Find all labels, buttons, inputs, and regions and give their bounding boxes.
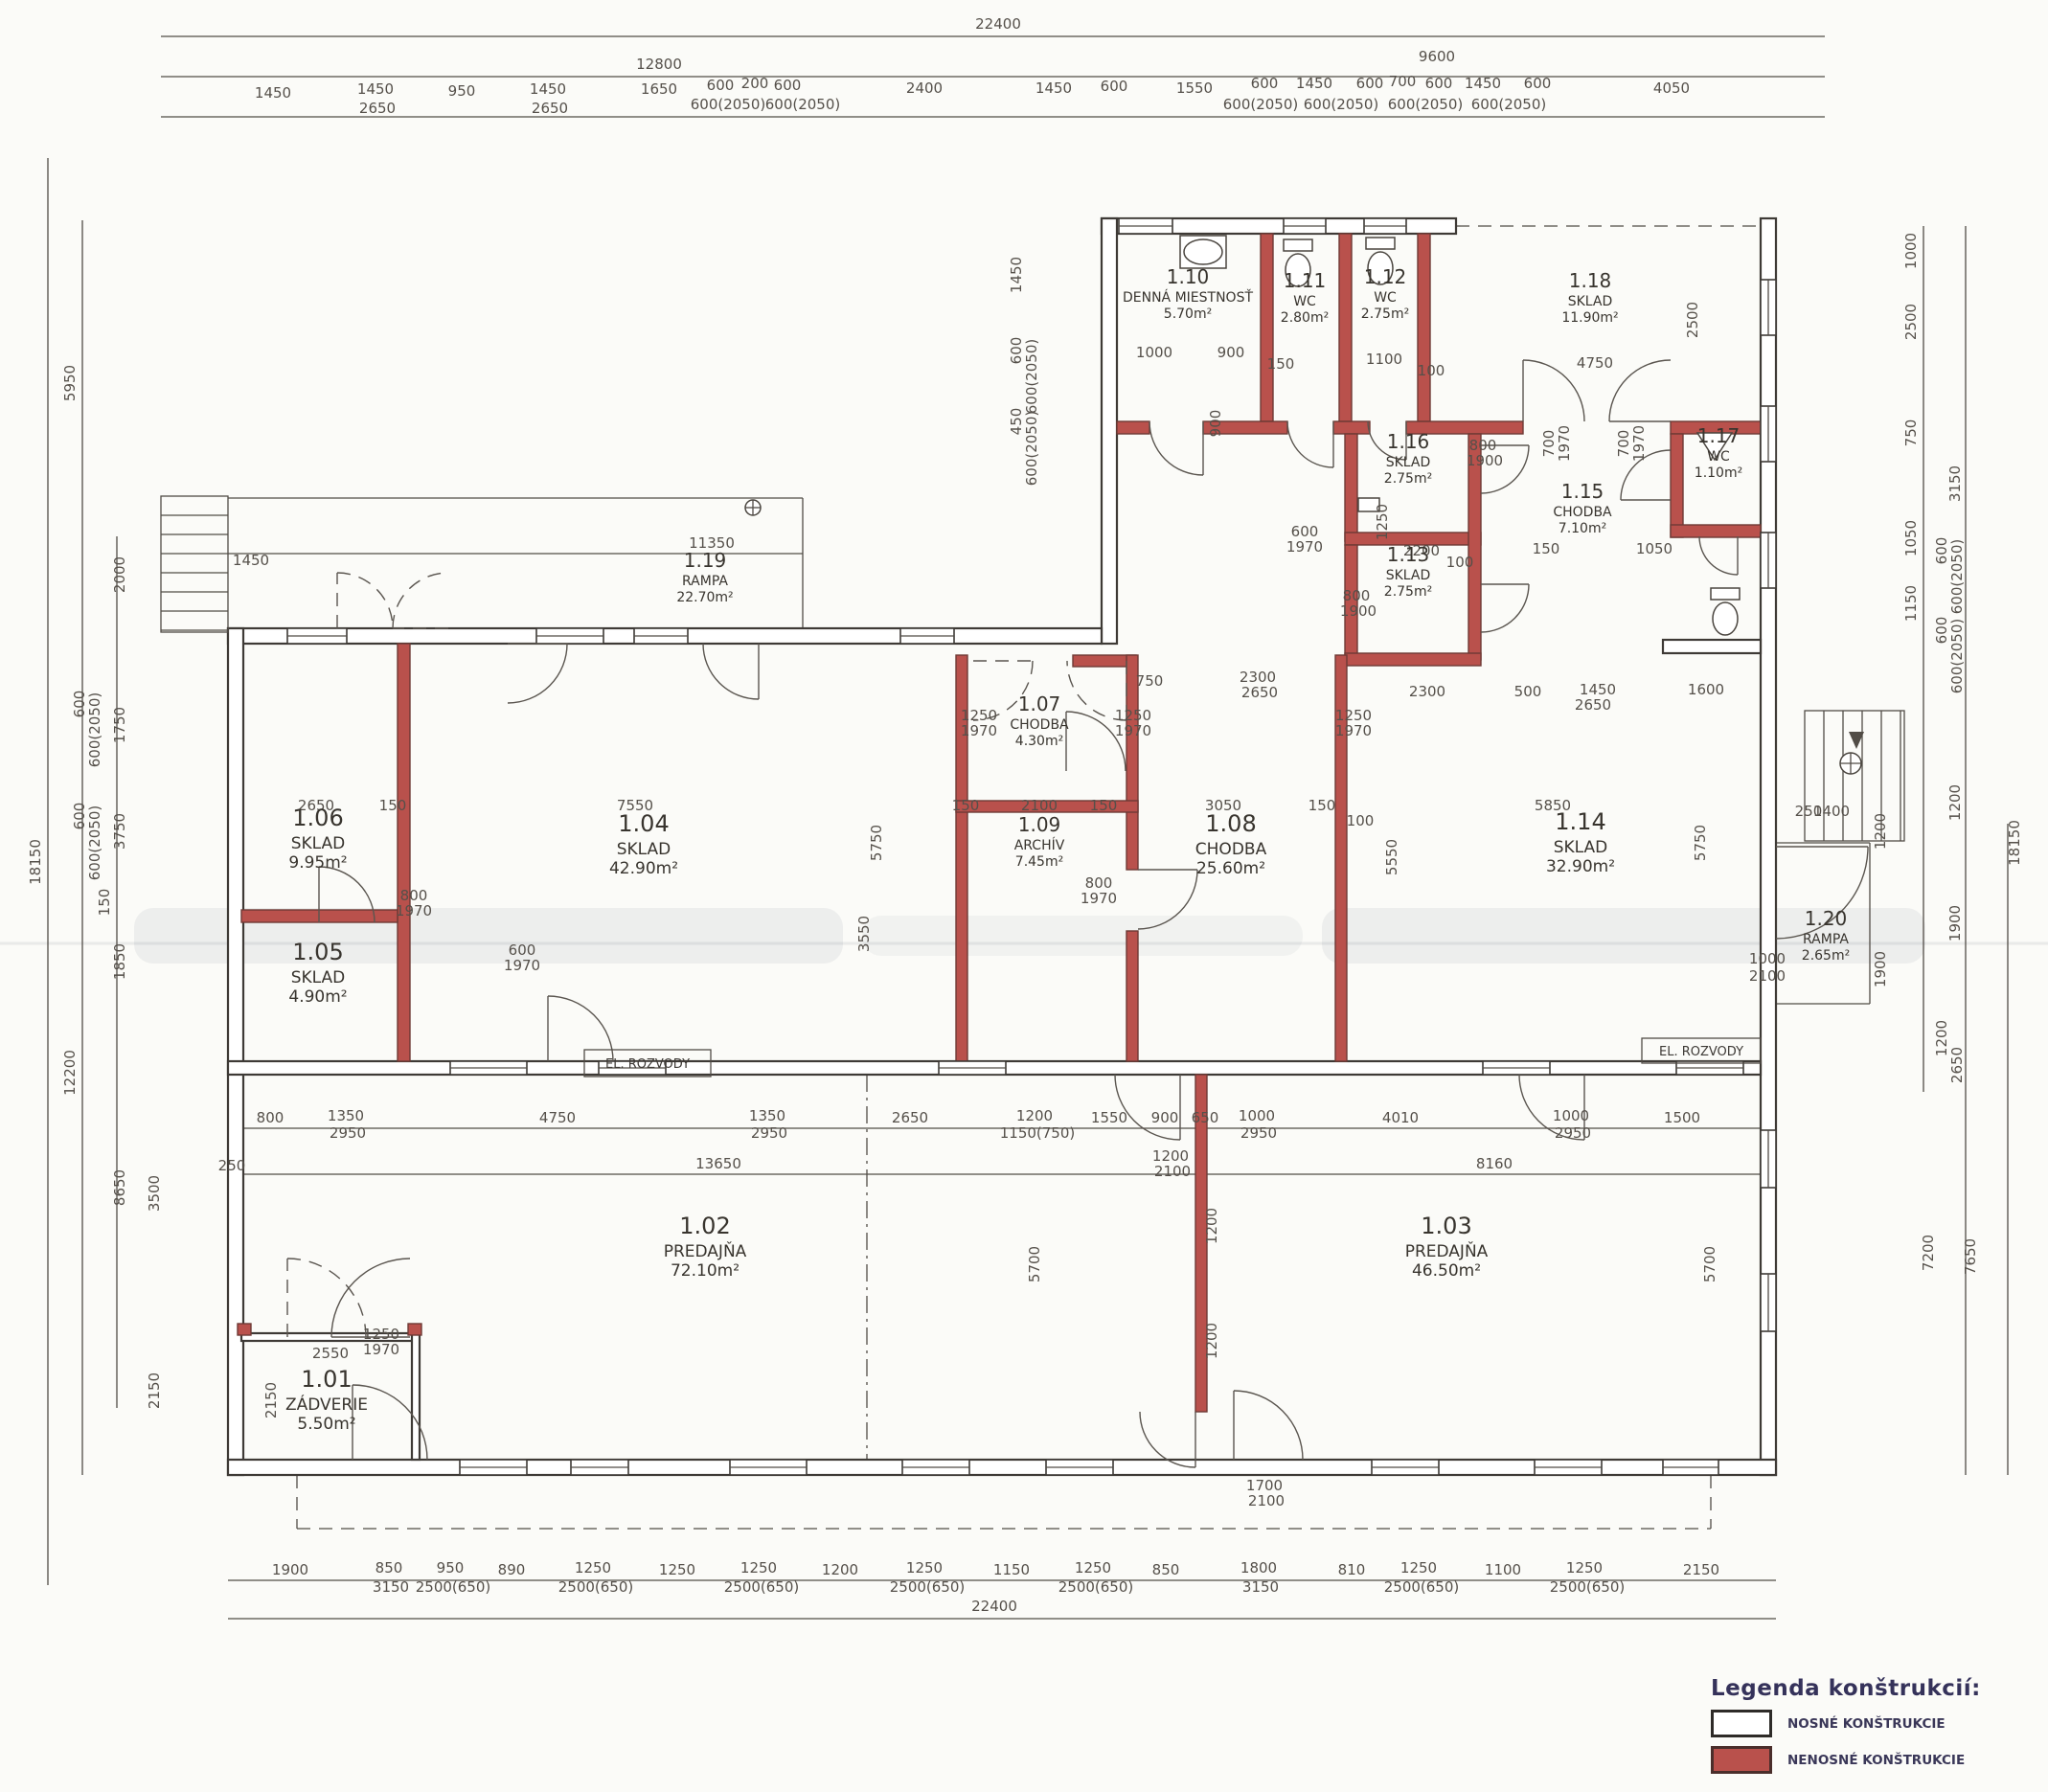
- dimension-label: 600(2050): [1304, 96, 1379, 113]
- dimension-label: 1970: [1630, 425, 1648, 462]
- room-area: 5.70m²: [1164, 306, 1212, 322]
- room-area: 25.60m²: [1196, 859, 1265, 878]
- load-bearing-wall: [412, 1333, 420, 1460]
- annotation-label: EL. ROZVODY: [1659, 1045, 1743, 1059]
- dimension-label: 1750: [111, 707, 128, 743]
- room-number-1.17: 1.17: [1697, 424, 1741, 447]
- room-area: 32.90m²: [1546, 857, 1615, 876]
- dimension-label: 1200: [1946, 784, 1964, 821]
- dimension-label: 1970: [363, 1341, 399, 1358]
- room-number-1.16: 1.16: [1387, 430, 1430, 453]
- dimension-label: 1200: [1016, 1107, 1053, 1124]
- room-number-1.19: 1.19: [684, 549, 727, 572]
- dimension-label: 600: [1524, 75, 1552, 92]
- door-swing-arc: [548, 996, 613, 1061]
- dimension-label: 1650: [641, 80, 677, 98]
- dimension-label: 1150: [993, 1561, 1030, 1578]
- dimension-label: 1900: [1946, 905, 1964, 941]
- dimension-label: 1900: [272, 1561, 308, 1578]
- load-bearing-wall: [1663, 640, 1761, 653]
- room-number-1.01: 1.01: [301, 1366, 352, 1393]
- non-load-bearing-wall: [1671, 434, 1683, 537]
- door-swing-arc: [393, 573, 448, 628]
- dimension-label: 600(2050): [1223, 96, 1299, 113]
- door-swing-arc: [1609, 360, 1671, 421]
- dimension-label: 4750: [539, 1109, 576, 1126]
- dimension-label: 22400: [975, 15, 1021, 33]
- dimension-label: 1200: [1203, 1208, 1220, 1244]
- dimension-label: 600: [774, 77, 802, 94]
- door-swing-arc: [1699, 536, 1738, 575]
- dimension-label: 200: [741, 75, 769, 92]
- dimension-label: 2500(650): [1550, 1578, 1626, 1596]
- dimension-label: 600(2050): [86, 692, 103, 768]
- dimension-label: 2100: [1248, 1492, 1285, 1509]
- dimension-label: 600(2050): [1023, 339, 1040, 415]
- dimension-label: 1200: [822, 1561, 858, 1578]
- dimension-label: 3550: [855, 916, 873, 952]
- dimension-label: 1900: [1340, 602, 1377, 620]
- room-number-1.07: 1.07: [1018, 692, 1061, 715]
- dimension-label: 1250: [740, 1559, 777, 1577]
- dimension-label: 1200: [1203, 1323, 1220, 1359]
- dimension-label: 1150(750): [1000, 1124, 1076, 1142]
- legend-item-load-bearing: NOSNÉ KONŠTRUKCIE: [1711, 1710, 2040, 1737]
- dimension-label: 3150: [1946, 465, 1964, 502]
- room-area: 2.75m²: [1384, 584, 1432, 600]
- dimension-label: 950: [448, 82, 476, 100]
- dimension-label: 600(2050): [1023, 411, 1040, 487]
- dimension-label: 1970: [1335, 722, 1372, 739]
- room-number-1.08: 1.08: [1205, 810, 1256, 837]
- dimension-label: 750: [1902, 420, 1920, 447]
- room-name: SKLAD: [1386, 568, 1431, 583]
- room-number-1.10: 1.10: [1167, 265, 1210, 288]
- room-number-1.06: 1.06: [292, 805, 343, 831]
- dimension-label: 1970: [396, 902, 432, 919]
- dimension-label: 600: [1425, 75, 1453, 92]
- room-area: 4.90m²: [288, 987, 347, 1007]
- dimension-label: 1000: [1136, 344, 1172, 361]
- dimension-label: 1200: [1872, 813, 1889, 850]
- room-number-1.04: 1.04: [618, 810, 669, 837]
- dimension-label: 2650: [892, 1109, 928, 1126]
- dimension-label: 2500(650): [1384, 1578, 1460, 1596]
- dimension-label: 1050: [1636, 540, 1673, 557]
- load-bearing-wall: [228, 628, 243, 1475]
- dimension-label: 1000: [1902, 233, 1920, 269]
- legend-title: Legenda konštrukcií:: [1711, 1676, 2040, 1701]
- dimension-label: 3150: [1242, 1578, 1279, 1596]
- dimension-label: 3150: [373, 1578, 409, 1596]
- dimension-label: 4750: [1577, 354, 1613, 372]
- dimension-label: 1250: [659, 1561, 695, 1578]
- dimension-label: 1000: [1239, 1107, 1275, 1124]
- room-area: 11.90m²: [1561, 310, 1618, 326]
- dimension-label: 4050: [1653, 79, 1690, 97]
- dimension-label: 1050: [1902, 520, 1920, 556]
- dimension-label: 850: [375, 1559, 403, 1577]
- dimension-label: 1970: [1081, 890, 1117, 907]
- dimension-label: 810: [1338, 1561, 1366, 1578]
- sanitary-fixture: [1284, 239, 1312, 251]
- room-name: SKLAD: [291, 834, 346, 853]
- room-name: CHODBA: [1010, 717, 1069, 733]
- dimension-label: 900: [1217, 344, 1245, 361]
- room-number-1.14: 1.14: [1555, 808, 1605, 835]
- dimension-label: 2100: [1021, 797, 1058, 814]
- dimension-label: 2650: [1948, 1047, 1966, 1083]
- door-swing-arc: [1287, 421, 1333, 467]
- dimension-label: 890: [498, 1561, 526, 1578]
- dimension-label: 2500(650): [1058, 1578, 1134, 1596]
- dimension-label: 2550: [312, 1345, 349, 1362]
- dimension-label: 2500(650): [890, 1578, 966, 1596]
- non-load-bearing-swatch: [1711, 1746, 1772, 1774]
- room-number-1.09: 1.09: [1018, 813, 1061, 836]
- dimension-label: 1600: [1688, 681, 1724, 698]
- room-area: 2.75m²: [1361, 306, 1409, 322]
- dimension-label: 2300: [1409, 683, 1445, 700]
- dimension-label: 5550: [1383, 839, 1400, 875]
- room-name: SKLAD: [1568, 294, 1613, 309]
- sanitary-fixture: [1711, 588, 1740, 600]
- room-area: 9.95m²: [288, 853, 347, 873]
- non-load-bearing-wall: [1333, 421, 1370, 434]
- non-load-bearing-wall: [1117, 421, 1149, 434]
- dimension-label: 850: [1152, 1561, 1180, 1578]
- room-area: 2.80m²: [1281, 310, 1329, 326]
- room-area: 46.50m²: [1412, 1261, 1481, 1281]
- dimension-label: 8160: [1476, 1155, 1513, 1172]
- dimension-label: 700: [1389, 73, 1417, 90]
- dimension-label: 1450: [233, 552, 269, 569]
- dimension-label: 2650: [1241, 684, 1278, 701]
- dimension-label: 1250: [575, 1559, 611, 1577]
- dimension-label: 1250: [1374, 504, 1391, 540]
- room-name: SKLAD: [291, 968, 346, 987]
- room-name: RAMPA: [1803, 932, 1849, 947]
- dimension-label: 1970: [1286, 538, 1323, 556]
- room-area: 72.10m²: [671, 1261, 740, 1281]
- dimension-label: 1350: [328, 1107, 364, 1124]
- dimension-label: 12200: [61, 1050, 79, 1096]
- dimension-label: 150: [1533, 540, 1560, 557]
- dimension-label: 600(2050): [1388, 96, 1464, 113]
- room-number-1.15: 1.15: [1561, 480, 1604, 503]
- dimension-label: 2650: [1575, 696, 1611, 714]
- dimension-label: 1450: [530, 80, 566, 98]
- dimension-label: 1500: [1664, 1109, 1700, 1126]
- dimension-label: 2950: [751, 1124, 787, 1142]
- dimension-label: 150: [952, 797, 980, 814]
- dimension-label: 900: [1207, 410, 1224, 438]
- room-number-1.20: 1.20: [1805, 907, 1848, 930]
- dimension-label: 600(2050): [765, 96, 841, 113]
- room-number-1.02: 1.02: [679, 1213, 730, 1239]
- dimension-label: 950: [437, 1559, 465, 1577]
- dimension-label: 1150: [1902, 585, 1920, 622]
- dimension-label: 1250: [1566, 1559, 1603, 1577]
- dimension-label: 8650: [111, 1169, 128, 1206]
- dimension-label: 1450: [1008, 257, 1025, 293]
- toilet-bowl: [1713, 602, 1738, 635]
- dimension-label: 2150: [146, 1372, 163, 1409]
- room-name: ZÁDVERIE: [285, 1394, 368, 1415]
- dimension-label: 2150: [262, 1382, 280, 1418]
- dimension-label: 1250: [1075, 1559, 1111, 1577]
- dimension-label: 5750: [868, 825, 885, 861]
- room-name: CHODBA: [1195, 840, 1267, 859]
- dimension-label: 1970: [1556, 425, 1573, 462]
- non-load-bearing-wall: [238, 1324, 251, 1335]
- door-swing-arc: [1481, 584, 1529, 632]
- dimension-label: 2950: [1555, 1124, 1591, 1142]
- dimension-label: 600: [1356, 75, 1384, 92]
- dimension-label: 1000: [1749, 950, 1786, 967]
- dimension-label: 2950: [330, 1124, 366, 1142]
- room-name: SKLAD: [617, 840, 671, 859]
- dimension-label: 1100: [1485, 1561, 1521, 1578]
- dimension-label: 1450: [255, 84, 291, 102]
- room-name: ARCHÍV: [1014, 837, 1065, 853]
- room-number-1.11: 1.11: [1284, 269, 1327, 292]
- room-area: 2.75m²: [1384, 471, 1432, 487]
- dimension-label: 5700: [1701, 1246, 1718, 1282]
- dimension-label: 2100: [1749, 967, 1786, 985]
- dimension-label: 12800: [636, 56, 682, 73]
- room-name: WC: [1707, 449, 1730, 465]
- dimension-label: 600(2050): [1948, 539, 1966, 615]
- dimension-label: 150: [1090, 797, 1118, 814]
- dimension-label: 2500(650): [724, 1578, 800, 1596]
- room-number-1.03: 1.03: [1421, 1213, 1471, 1239]
- dimension-label: 750: [1136, 672, 1164, 690]
- annotation-label: EL. ROZVODY: [605, 1057, 690, 1072]
- dimension-label: 150: [1267, 355, 1295, 373]
- sanitary-fixture: [1366, 238, 1395, 249]
- door-swing-arc: [508, 644, 567, 703]
- legend-item-non-load-bearing: NENOSNÉ KONŠTRUKCIE: [1711, 1746, 2040, 1774]
- dimension-label: 100: [1446, 554, 1474, 571]
- dimension-label: 100: [1347, 812, 1375, 829]
- room-number-1.12: 1.12: [1364, 265, 1407, 288]
- dimension-label: 650: [1192, 1109, 1219, 1126]
- non-load-bearing-wall: [1261, 234, 1273, 421]
- dimension-label: 1000: [1553, 1107, 1589, 1124]
- dimension-label: 600(2050): [1471, 96, 1547, 113]
- door-swing-arc: [1149, 421, 1203, 475]
- dimension-label: 2650: [359, 100, 396, 117]
- dimension-label: 1100: [1366, 351, 1402, 368]
- dimension-label: 3500: [146, 1175, 163, 1212]
- load-bearing-wall: [1102, 218, 1117, 644]
- room-area: 2.65m²: [1802, 948, 1850, 964]
- door-swing-arc: [1115, 1075, 1180, 1140]
- dimension-label: 9600: [1419, 48, 1455, 65]
- non-load-bearing-wall: [408, 1324, 421, 1335]
- non-load-bearing-wall: [1671, 525, 1761, 537]
- dimension-label: 1450: [357, 80, 394, 98]
- door-swing-arc: [1234, 1391, 1303, 1460]
- dimension-label: 2000: [111, 556, 128, 593]
- dimension-label: 1350: [749, 1107, 785, 1124]
- room-area: 4.30m²: [1015, 734, 1063, 749]
- room-name: PREDAJŇA: [664, 1240, 747, 1261]
- dimension-label: 2150: [1683, 1561, 1719, 1578]
- legend-item-label: NOSNÉ KONŠTRUKCIE: [1787, 1716, 1946, 1732]
- dimension-label: 500: [1514, 683, 1542, 700]
- dimension-label: 2500(650): [558, 1578, 634, 1596]
- room-area: 22.70m²: [676, 590, 733, 605]
- dimension-label: 2950: [1240, 1124, 1277, 1142]
- non-load-bearing-wall: [1418, 234, 1430, 421]
- dimension-label: 600(2050): [691, 96, 766, 113]
- dimension-label: 600(2050): [86, 805, 103, 881]
- scan-artifact: [862, 916, 1303, 956]
- room-number-1.05: 1.05: [292, 939, 343, 965]
- dimension-label: 1250: [906, 1559, 943, 1577]
- dimension-label: 1900: [1872, 951, 1889, 987]
- non-load-bearing-wall: [398, 644, 410, 1061]
- dimension-label: 5750: [1692, 825, 1709, 861]
- dimension-label: 1250: [1400, 1559, 1437, 1577]
- door-swing-arc: [337, 573, 393, 628]
- dimension-label: 18150: [2006, 820, 2023, 866]
- non-load-bearing-wall: [1339, 234, 1352, 421]
- room-name: SKLAD: [1386, 455, 1431, 470]
- dimension-label: 22400: [971, 1598, 1017, 1615]
- floor-plan-page: EL. ROZVODYEL. ROZVODY224001280096001450…: [0, 0, 2048, 1792]
- room-name: PREDAJŇA: [1405, 1240, 1489, 1261]
- stairs-outline: [161, 496, 228, 632]
- dimension-label: 1900: [1467, 452, 1503, 469]
- floor-plan-drawing: EL. ROZVODYEL. ROZVODY224001280096001450…: [0, 0, 2048, 1792]
- toilet-bowl: [1184, 239, 1222, 264]
- non-load-bearing-wall: [1345, 434, 1357, 541]
- dimension-label: 150: [1308, 797, 1336, 814]
- dimension-label: 2100: [1154, 1163, 1191, 1180]
- dimension-label: 150: [379, 797, 407, 814]
- dimension-label: 2500: [1902, 304, 1920, 340]
- door-swing-arc: [287, 1259, 366, 1337]
- dimension-label: 13650: [695, 1155, 741, 1172]
- dimension-label: 2400: [906, 79, 943, 97]
- dimension-label: 5700: [1026, 1246, 1043, 1282]
- dimension-label: 1970: [504, 957, 540, 974]
- room-name: RAMPA: [682, 574, 728, 589]
- dimension-label: 250: [218, 1157, 246, 1174]
- non-load-bearing-wall: [1126, 931, 1138, 1061]
- dimension-label: 800: [257, 1109, 284, 1126]
- dimension-label: 2500: [1684, 302, 1701, 338]
- room-name: CHODBA: [1553, 505, 1612, 520]
- dimension-label: 3750: [111, 813, 128, 850]
- dimension-label: 600: [1251, 75, 1279, 92]
- room-area: 42.90m²: [609, 859, 678, 878]
- room-name: WC: [1374, 290, 1397, 306]
- dimension-label: 150: [96, 889, 113, 917]
- dimension-label: 1970: [961, 722, 997, 739]
- dimension-label: 600(2050): [1948, 619, 1966, 694]
- dimension-label: 1550: [1176, 79, 1213, 97]
- non-load-bearing-wall: [1345, 653, 1481, 666]
- dimension-label: 2500(650): [416, 1578, 491, 1596]
- dimension-label: 7650: [1962, 1238, 1979, 1275]
- room-name: DENNÁ MIESTNOSŤ: [1123, 289, 1253, 306]
- dimension-label: 100: [1418, 362, 1445, 379]
- dimension-label: 1850: [111, 943, 128, 980]
- dimension-label: 600: [707, 77, 735, 94]
- room-area: 7.45m²: [1015, 854, 1063, 870]
- dimension-label: 900: [1151, 1109, 1179, 1126]
- dimension-label: 5950: [61, 365, 79, 401]
- dimension-label: 7200: [1920, 1235, 1937, 1271]
- dimension-label: 2650: [532, 100, 568, 117]
- dimension-label: 1450: [1465, 75, 1501, 92]
- room-name: WC: [1293, 294, 1316, 309]
- door-swing-arc: [1523, 360, 1584, 421]
- stairs-outline: [1805, 711, 1904, 841]
- room-number-1.18: 1.18: [1569, 269, 1612, 292]
- room-area: 5.50m²: [297, 1415, 355, 1434]
- room-name: SKLAD: [1554, 838, 1608, 857]
- construction-legend: Legenda konštrukcií: NOSNÉ KONŠTRUKCIE N…: [1711, 1676, 2040, 1774]
- dimension-label: 1550: [1091, 1109, 1127, 1126]
- legend-item-label: NENOSNÉ KONŠTRUKCIE: [1787, 1753, 1965, 1768]
- dimension-label: 1450: [1035, 79, 1072, 97]
- dimension-label: 250: [1795, 803, 1823, 820]
- door-swing-arc: [1138, 870, 1197, 929]
- room-area: 7.10m²: [1559, 521, 1606, 536]
- room-area: 1.10m²: [1695, 465, 1742, 481]
- room-number-1.13: 1.13: [1387, 543, 1430, 566]
- dimension-label: 1800: [1240, 1559, 1277, 1577]
- dimension-label: 1450: [1296, 75, 1332, 92]
- dimension-label: 1970: [1115, 722, 1151, 739]
- door-swing-arc: [703, 644, 759, 699]
- dimension-label: 4010: [1382, 1109, 1419, 1126]
- dimension-label: 600: [1101, 78, 1128, 95]
- dimension-label: 18150: [27, 839, 44, 885]
- load-bearing-swatch: [1711, 1710, 1772, 1737]
